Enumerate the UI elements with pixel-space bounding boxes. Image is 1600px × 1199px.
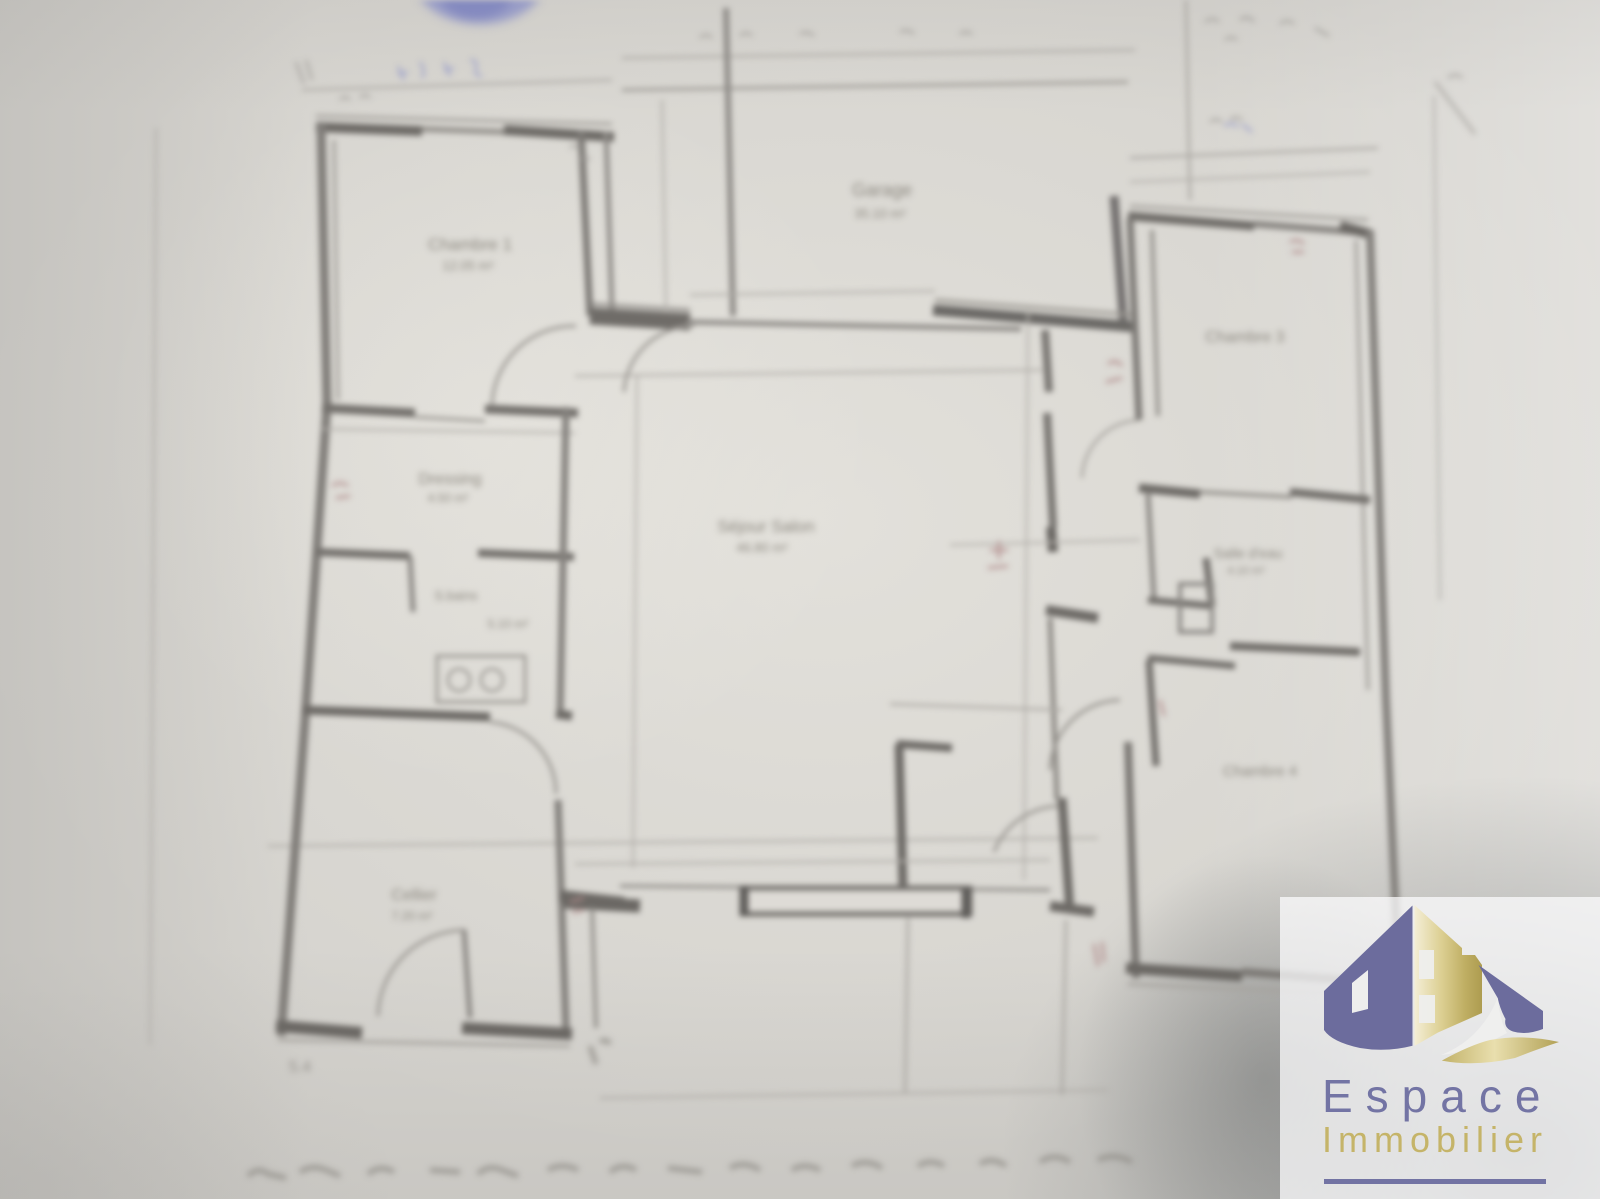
svg-text:35.10 m²: 35.10 m² (854, 206, 906, 221)
svg-text:Dressing: Dressing (418, 471, 481, 488)
svg-text:7.20 m²: 7.20 m² (392, 909, 433, 923)
svg-text:5.10 m²: 5.10 m² (488, 617, 529, 631)
svg-text:Chambre 1: Chambre 1 (428, 235, 512, 254)
svg-text:46.80 m²: 46.80 m² (736, 540, 788, 555)
svg-text:12.05 m²: 12.05 m² (442, 258, 494, 273)
svg-text:Garage: Garage (852, 180, 912, 200)
svg-text:Cellier: Cellier (391, 887, 437, 904)
svg-text:5.4: 5.4 (289, 1059, 311, 1076)
svg-text:4.50 m²: 4.50 m² (428, 491, 469, 505)
svg-text:Séjour Salon: Séjour Salon (717, 517, 814, 536)
svg-text:Chambre 3: Chambre 3 (1205, 329, 1284, 346)
svg-text:S.bains: S.bains (434, 588, 478, 603)
svg-text:4.10 m²: 4.10 m² (1227, 565, 1265, 577)
svg-text:Salle d'eau: Salle d'eau (1214, 545, 1283, 561)
svg-text:Chambre 4: Chambre 4 (1223, 763, 1297, 780)
